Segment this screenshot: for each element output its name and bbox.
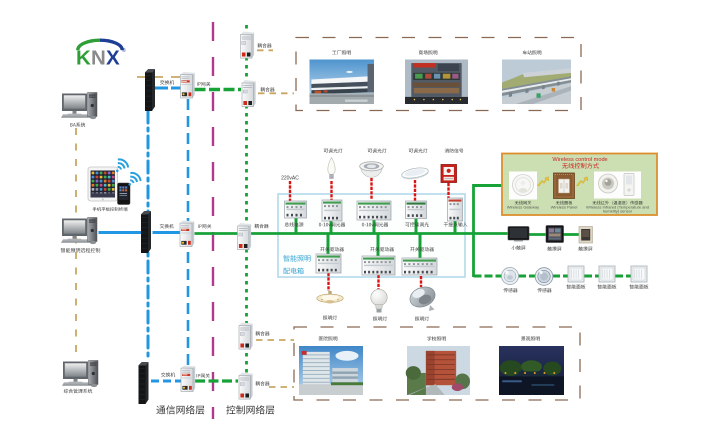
svg-text:Wireless control mode: Wireless control mode (552, 157, 607, 163)
svg-text:®: ® (122, 47, 126, 54)
svg-text:humidity) sensor: humidity) sensor (603, 209, 633, 214)
svg-text:220vAC: 220vAC (281, 176, 299, 182)
svg-text:KNX: KNX (76, 47, 120, 70)
svg-text:Wireless Panel: Wireless Panel (551, 205, 578, 210)
svg-text:Wireless Gateway: Wireless Gateway (507, 205, 539, 210)
